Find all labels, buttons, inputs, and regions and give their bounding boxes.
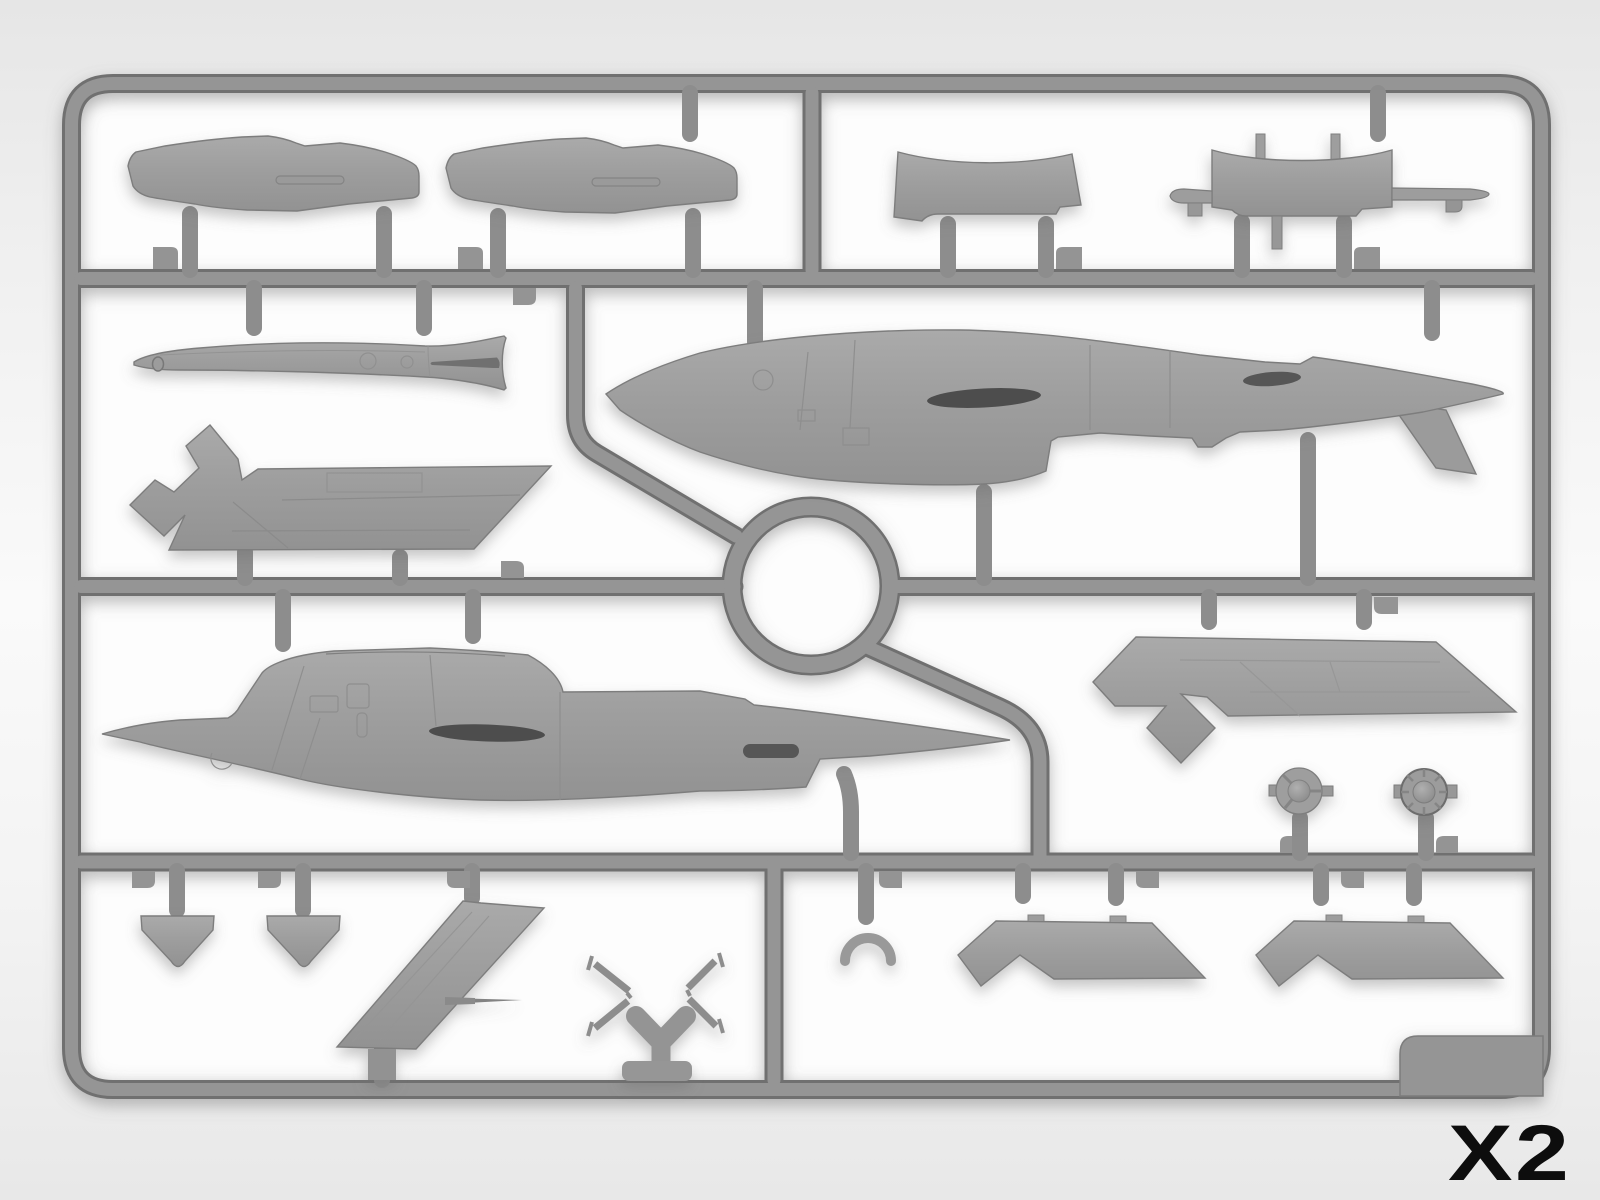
svg-text:X2: X2 — [1448, 1108, 1571, 1197]
